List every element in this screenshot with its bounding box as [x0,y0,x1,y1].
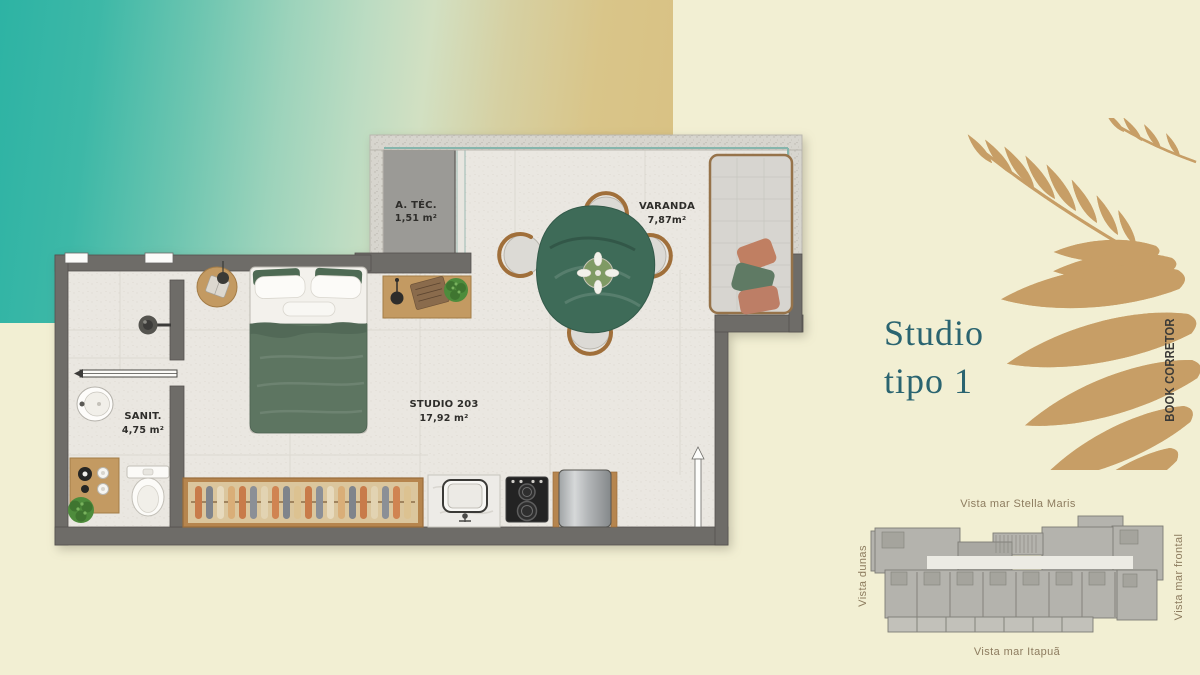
room-area-varanda: 7,87m² [648,215,687,226]
room-label-a-tec: A. TÉC. [395,198,436,211]
bathroom-plant [68,497,94,523]
desk-plant [444,278,468,302]
room-area-sanit: 4,75 m² [122,425,164,436]
lounger-daybed [710,155,792,315]
corridor [927,556,1133,569]
brochure-slide: A. TÉC. 1,51 m² VARANDA 7,87m² SANIT. 4,… [0,0,1200,675]
room-label-studio: STUDIO 203 [409,399,478,410]
room-area-a-tec: 1,51 m² [395,213,437,224]
bathroom-sliding-door [74,369,177,378]
floor-plan: A. TÉC. 1,51 m² VARANDA 7,87m² SANIT. 4,… [45,128,815,553]
bed [250,267,367,433]
key-plan-building [868,512,1168,637]
pendant-lamp [217,272,229,284]
keyplan-label-bottom: Vista mar Itapuã [974,646,1060,658]
palm-leaf-decoration [880,118,1200,470]
kitchen-sink-counter [428,475,500,527]
bathroom-sink [77,387,113,421]
fridge [553,470,617,527]
book-corretor-label: BOOK CORRETOR [1163,318,1177,421]
room-label-sanit: SANIT. [124,411,161,422]
title-line-1: Studio [884,310,984,358]
room-label-varanda: VARANDA [639,201,695,212]
room-area-studio: 17,92 m² [419,413,468,424]
keyplan-label-top: Vista mar Stella Maris [960,498,1076,510]
keyplan-label-right: Vista mar frontal [1173,534,1185,621]
desk [383,276,471,318]
page-title: Studio tipo 1 [884,310,984,406]
title-line-2: tipo 1 [884,358,984,406]
cooktop [506,477,548,522]
wardrobe [183,478,423,527]
